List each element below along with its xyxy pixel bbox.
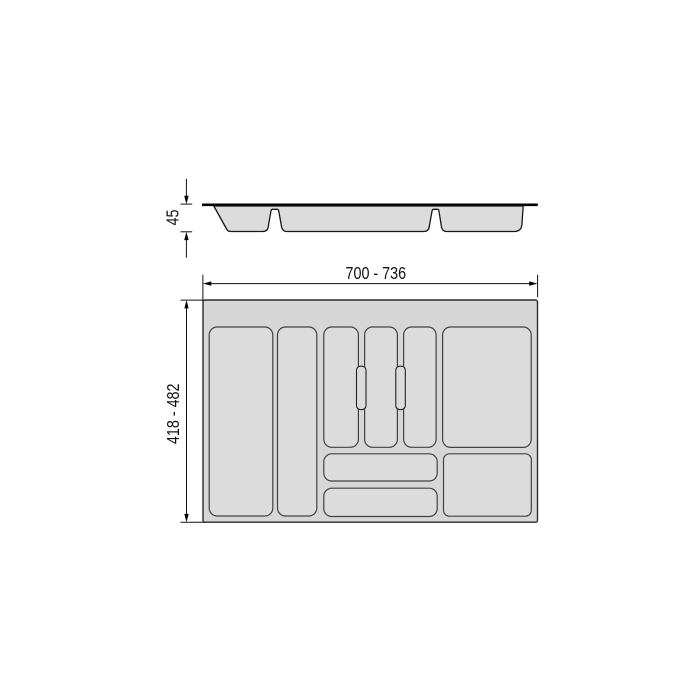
svg-text:418 - 482: 418 - 482	[165, 383, 184, 444]
svg-text:45: 45	[164, 209, 183, 225]
svg-text:700 - 736: 700 - 736	[345, 265, 406, 284]
